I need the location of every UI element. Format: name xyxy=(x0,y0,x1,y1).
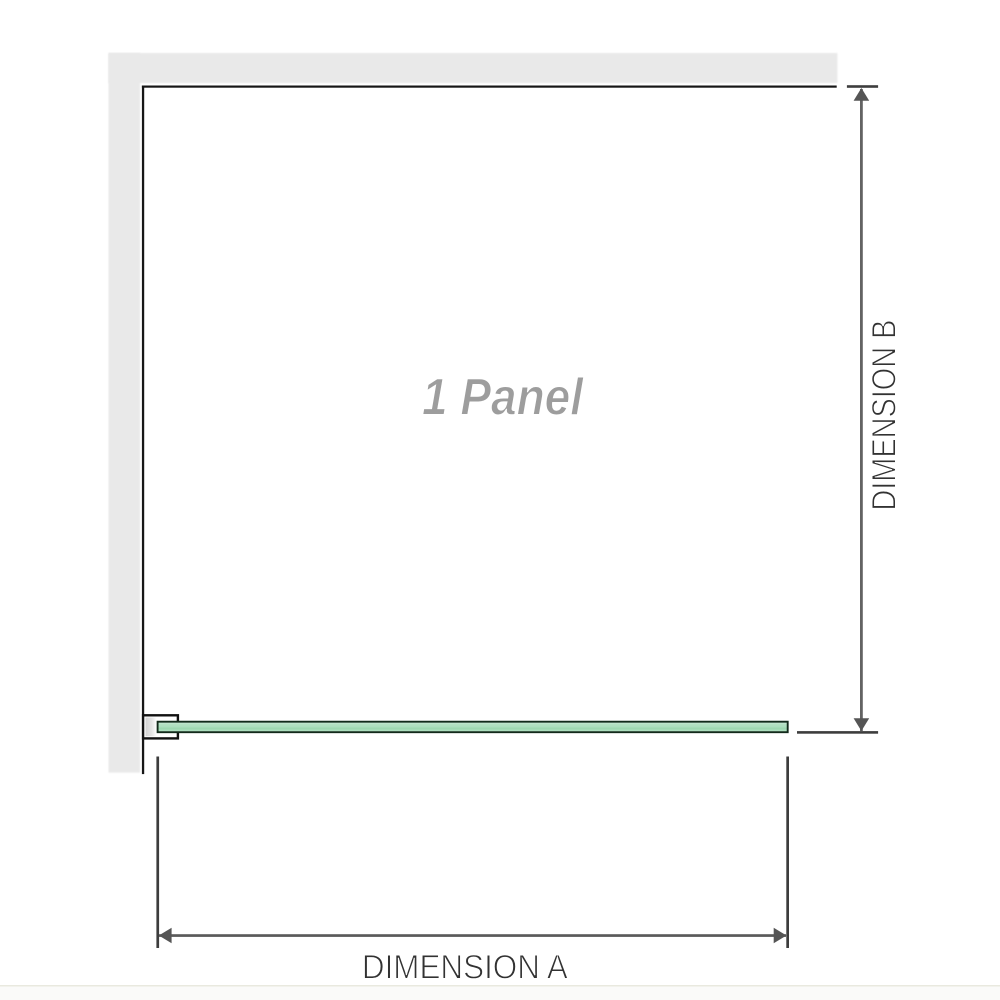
svg-text:1 Panel: 1 Panel xyxy=(422,368,585,426)
svg-text:DIMENSION B: DIMENSION B xyxy=(866,320,904,511)
svg-text:DIMENSION A: DIMENSION A xyxy=(362,949,568,987)
